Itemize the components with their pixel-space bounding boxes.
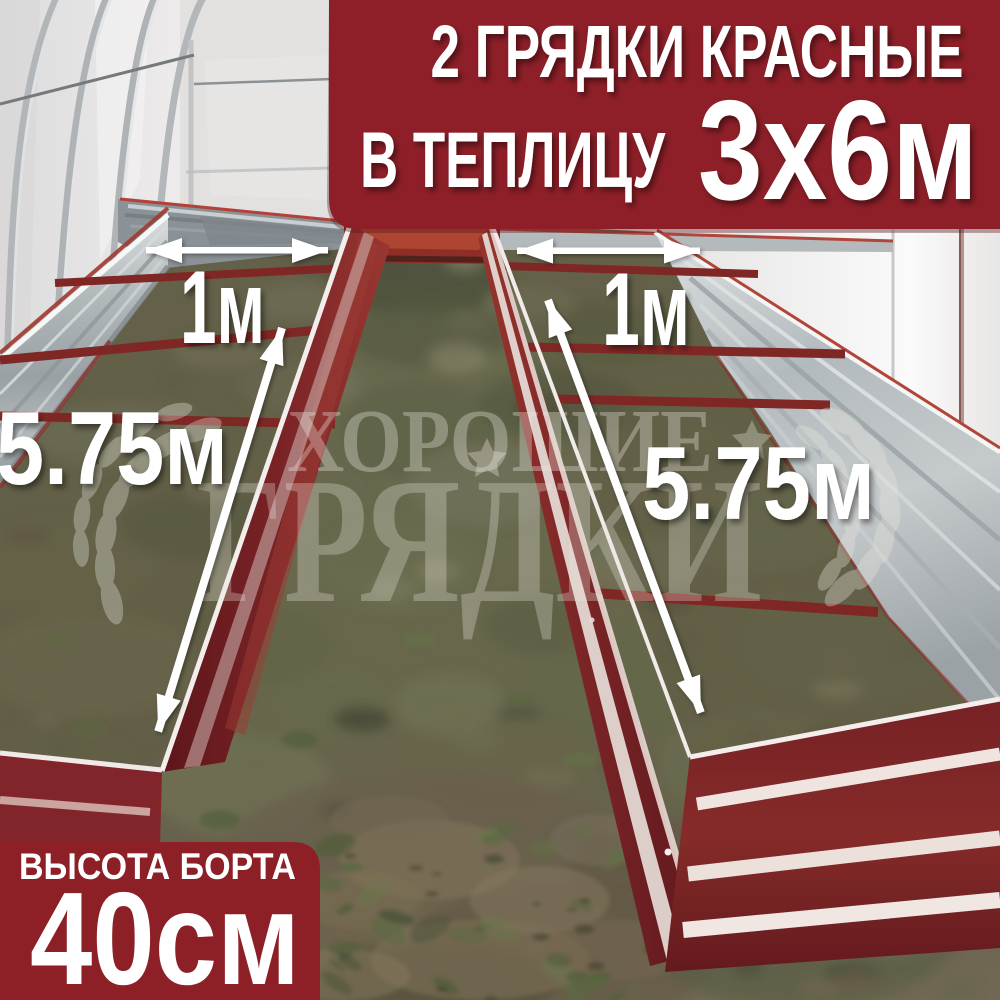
svg-text:В ТЕПЛИЦУ: В ТЕПЛИЦУ <box>360 115 666 204</box>
svg-text:5.75м: 5.75м <box>642 426 875 542</box>
svg-text:5.75м: 5.75м <box>0 391 228 507</box>
svg-text:1м: 1м <box>602 252 690 368</box>
svg-text:3х6м: 3х6м <box>698 71 978 230</box>
svg-text:40см: 40см <box>30 865 300 1000</box>
svg-text:1м: 1м <box>180 250 265 366</box>
